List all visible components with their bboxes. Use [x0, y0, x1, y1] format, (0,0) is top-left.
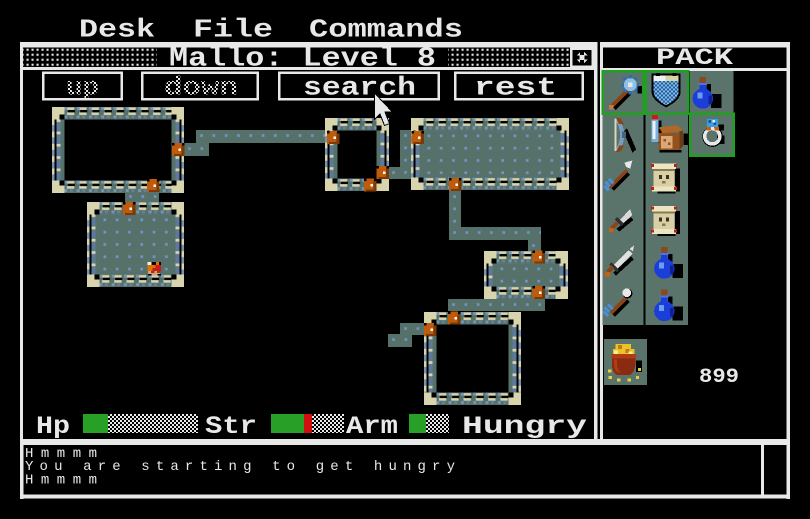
svg-text:search: search: [303, 73, 416, 103]
svg-text:rest: rest: [474, 73, 557, 103]
svg-text:down: down: [164, 73, 238, 103]
svg-text:PACK: PACK: [656, 45, 733, 71]
svg-text:Str: Str: [205, 412, 257, 441]
svg-text:Hungry: Hungry: [462, 412, 587, 441]
svg-text:899: 899: [699, 366, 739, 389]
svg-text:Commands: Commands: [309, 15, 463, 45]
svg-text:Arm: Arm: [346, 412, 398, 441]
svg-text:up: up: [66, 73, 99, 103]
svg-text:Desk: Desk: [79, 15, 155, 45]
svg-text:File: File: [193, 15, 273, 45]
svg-text:Hp: Hp: [36, 412, 70, 441]
